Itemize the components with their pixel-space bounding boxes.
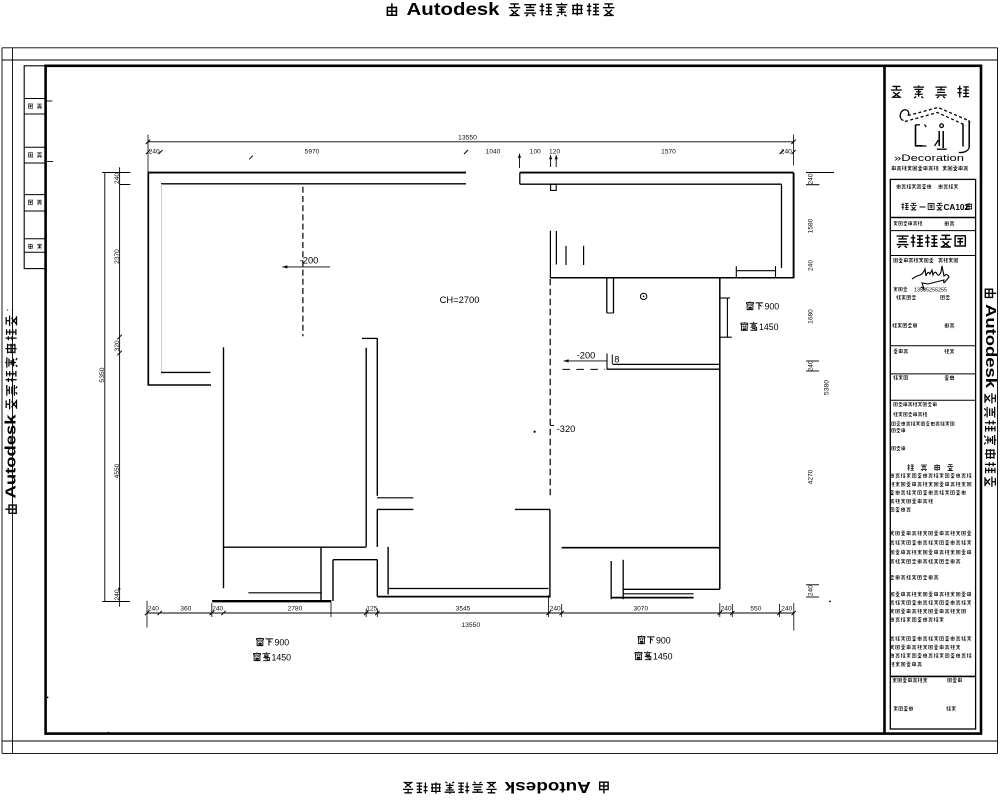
svg-text:8: 8 [614, 355, 619, 365]
svg-text:3070: 3070 [633, 605, 648, 612]
svg-text:13585255255: 13585255255 [914, 287, 947, 293]
svg-text:-200: -200 [300, 256, 319, 266]
svg-text:240: 240 [808, 173, 815, 184]
svg-text:1040: 1040 [486, 149, 501, 156]
svg-text:5350: 5350 [99, 367, 106, 382]
svg-text:240: 240 [148, 605, 159, 612]
svg-text:100: 100 [530, 149, 541, 156]
svg-text:1580: 1580 [808, 218, 815, 233]
svg-text:13550: 13550 [461, 622, 480, 629]
svg-text:320: 320 [114, 340, 121, 351]
svg-text:Autodesk: Autodesk [982, 304, 999, 389]
svg-text:2370: 2370 [114, 249, 121, 264]
svg-text:Autodesk: Autodesk [3, 414, 20, 499]
svg-text:125: 125 [366, 605, 377, 612]
svg-text:240: 240 [212, 605, 223, 612]
svg-text:900: 900 [765, 302, 780, 312]
svg-text:240: 240 [781, 149, 792, 156]
svg-text:360: 360 [180, 605, 191, 612]
svg-text:-200: -200 [577, 350, 596, 360]
svg-text:1450: 1450 [272, 653, 292, 663]
svg-text:240: 240 [808, 260, 815, 271]
svg-text:240: 240 [808, 360, 815, 371]
svg-text::: : [4, 308, 16, 311]
svg-text:CH=2700: CH=2700 [440, 294, 480, 305]
svg-text:5970: 5970 [305, 149, 320, 156]
svg-text:4270: 4270 [808, 469, 815, 484]
svg-text:1450: 1450 [653, 652, 673, 662]
svg-text:5380: 5380 [824, 380, 831, 395]
svg-text:900: 900 [275, 638, 290, 648]
svg-text:240: 240 [550, 605, 561, 612]
svg-text:»Decoration: »Decoration [894, 153, 964, 163]
svg-text:900: 900 [656, 636, 671, 646]
svg-text:4550: 4550 [114, 463, 121, 478]
svg-text:1450: 1450 [759, 322, 779, 332]
svg-text:120: 120 [549, 149, 560, 156]
svg-text:240: 240 [149, 149, 160, 156]
svg-text:3545: 3545 [456, 605, 471, 612]
svg-text:2780: 2780 [288, 605, 303, 612]
svg-text:13550: 13550 [458, 135, 477, 142]
svg-text:240: 240 [114, 173, 121, 184]
svg-text:550: 550 [750, 605, 761, 612]
svg-text:-320: -320 [557, 424, 576, 434]
svg-text:1680: 1680 [808, 309, 815, 324]
svg-text:Autodesk: Autodesk [505, 778, 591, 795]
svg-text:Autodesk: Autodesk [407, 0, 501, 19]
svg-text:1570: 1570 [661, 149, 676, 156]
svg-text:240: 240 [114, 589, 121, 600]
svg-text:240: 240 [808, 585, 815, 596]
svg-text:240: 240 [781, 605, 792, 612]
svg-text:240: 240 [721, 605, 732, 612]
svg-text:CA102: CA102 [944, 203, 970, 212]
